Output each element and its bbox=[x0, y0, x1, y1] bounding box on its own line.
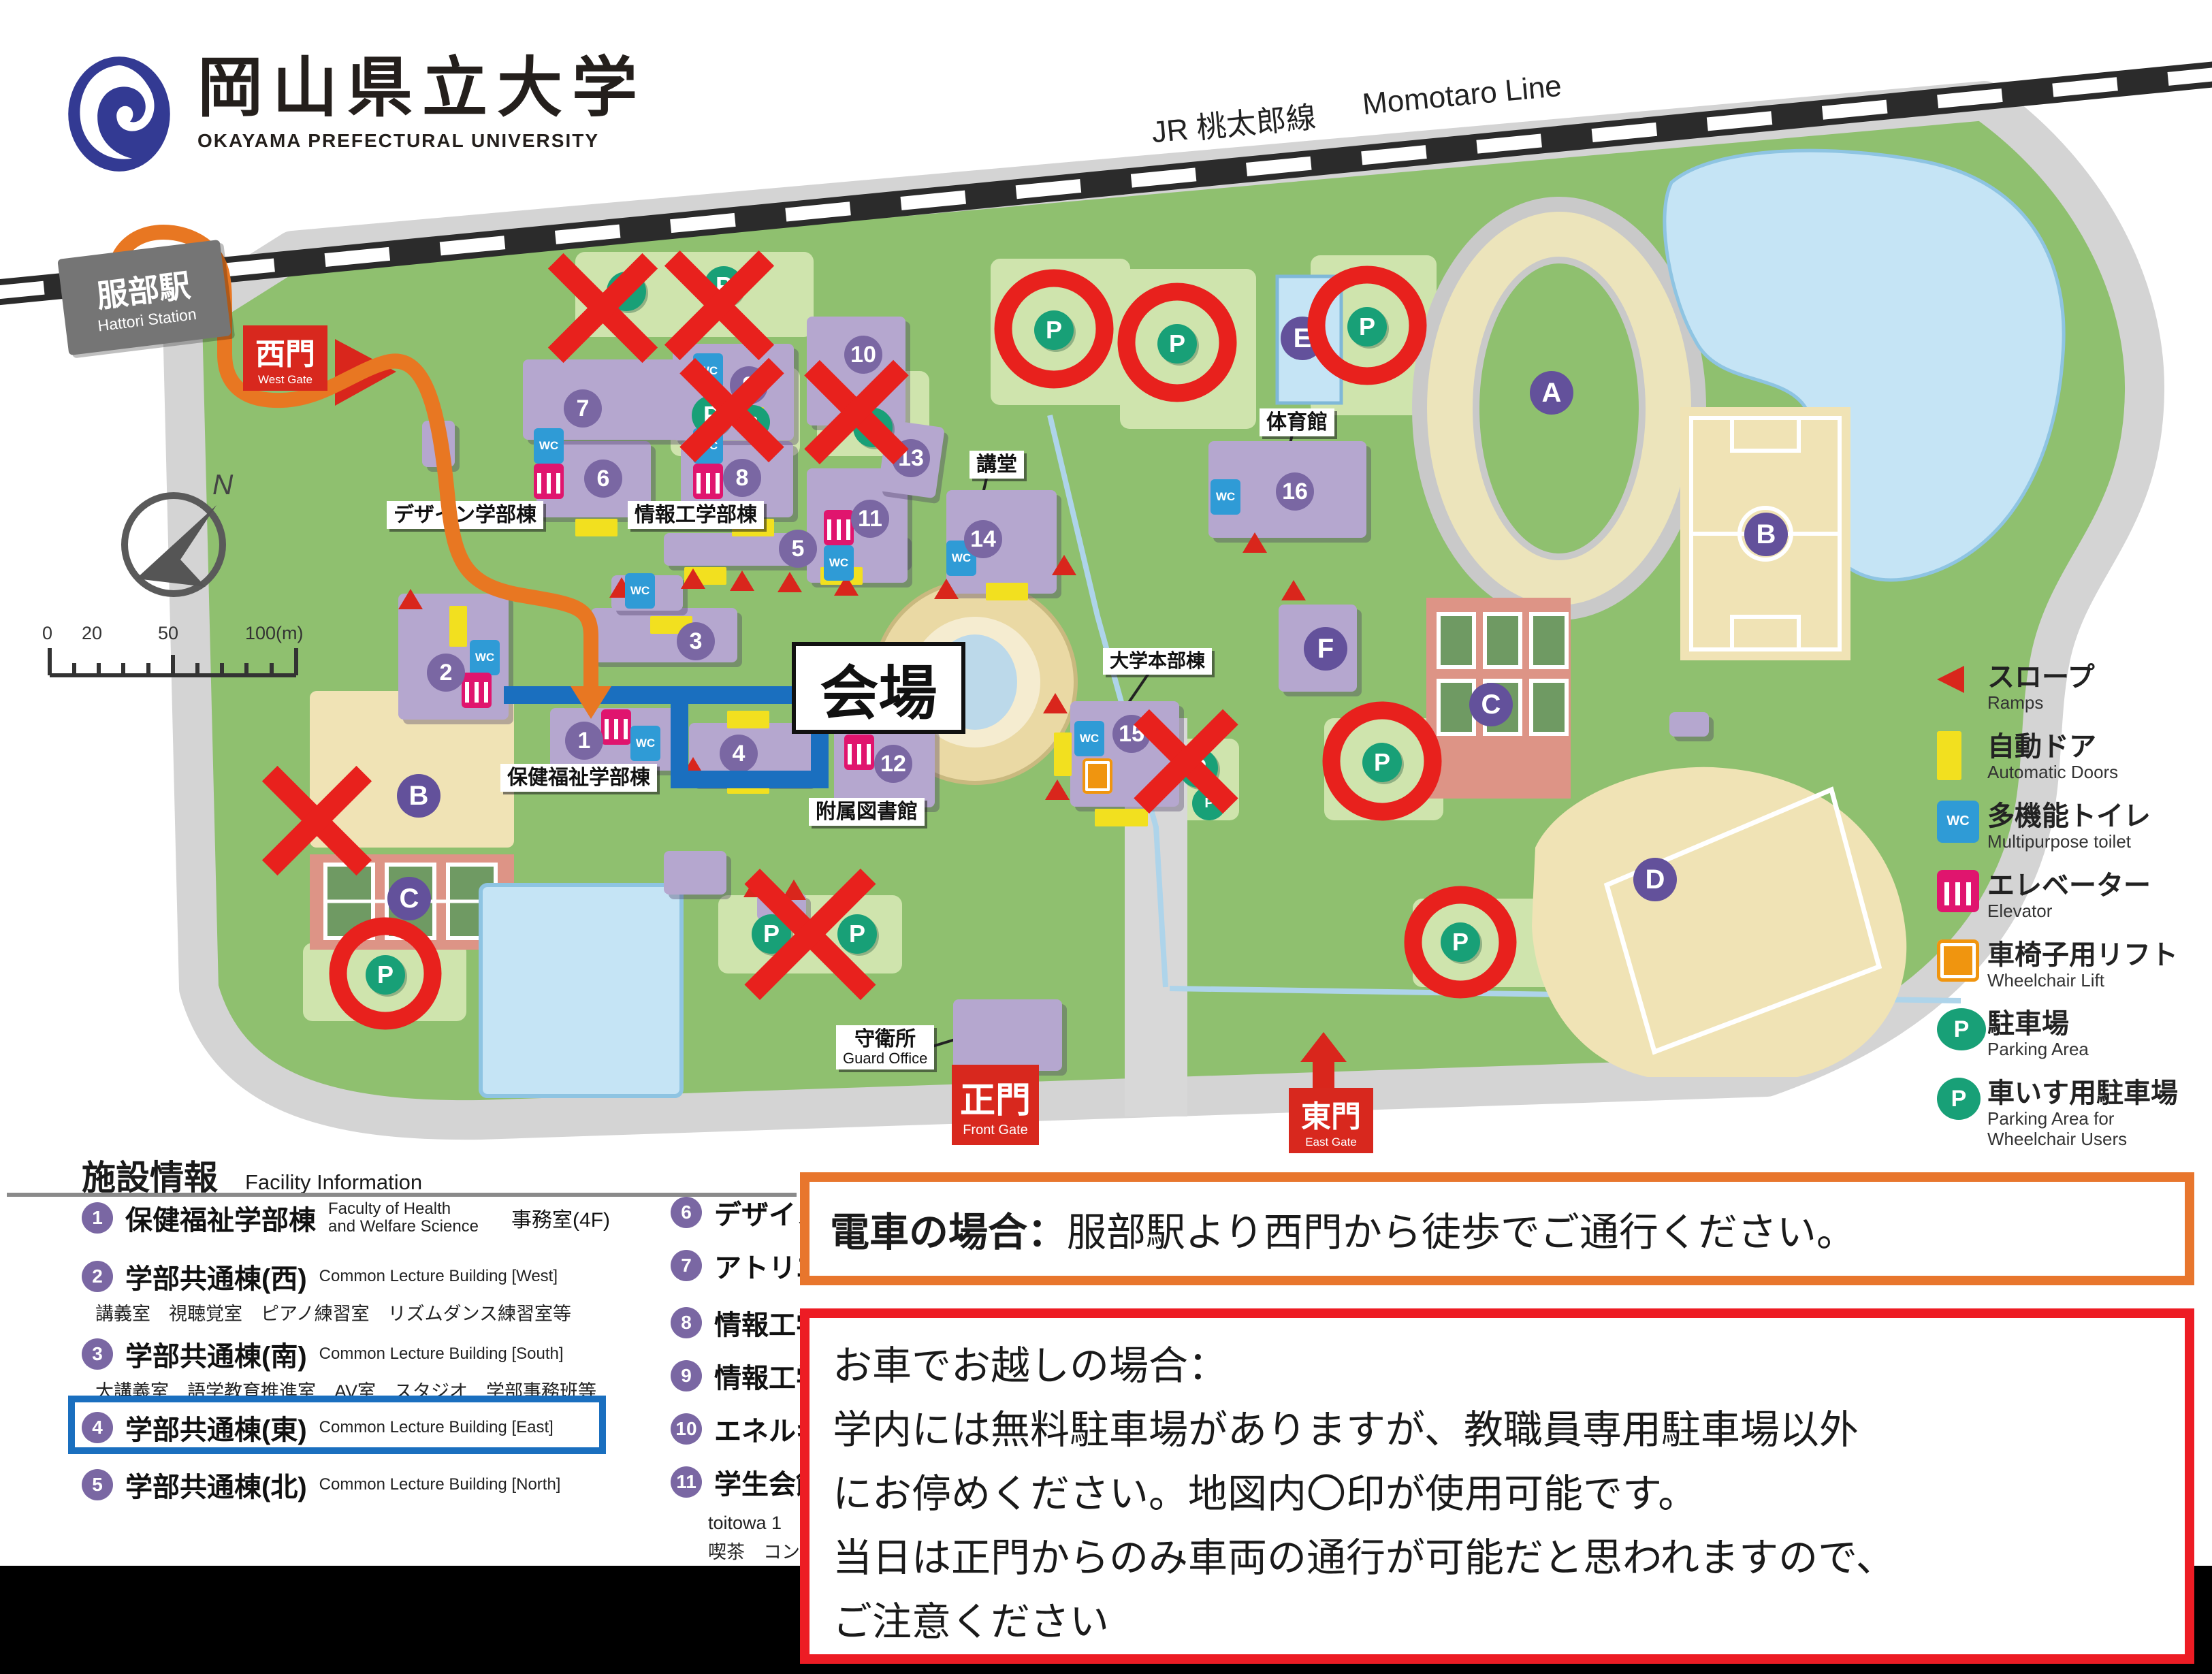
front-gate-en: Front Gate bbox=[963, 1123, 1028, 1138]
facility-sub: 講義室 視聴覚室 ピアノ練習室 リズムダンス練習室等 bbox=[95, 1299, 571, 1325]
facility-num: 7 bbox=[671, 1250, 702, 1281]
allowed-parking-circle-mark bbox=[1118, 283, 1237, 402]
building-number-marker: 14 bbox=[964, 520, 1002, 558]
area-letter-marker: F bbox=[1304, 627, 1347, 671]
multipurpose-toilet-icon: WC bbox=[630, 726, 660, 761]
area-letter-marker: D bbox=[1633, 858, 1677, 901]
facility-num: 1 bbox=[82, 1202, 113, 1234]
allowed-parking-circle-mark bbox=[995, 270, 1114, 389]
guard-office-building bbox=[953, 999, 1062, 1071]
facility-row-3: 3 学部共通棟(南) Common Lecture Building [Sout… bbox=[82, 1334, 564, 1374]
parking-icon: P bbox=[1937, 1008, 1986, 1050]
hattori-station-sign: 服部駅 Hattori Station bbox=[57, 240, 231, 355]
facility-num: 9 bbox=[671, 1360, 702, 1391]
front-gate-ja: 正門 bbox=[960, 1072, 1031, 1123]
wheelchair-parking-icon: P bbox=[1937, 1078, 1981, 1120]
facility-name-en: Faculty of Health bbox=[328, 1200, 479, 1218]
automatic-door-icon bbox=[1054, 733, 1072, 776]
legend-ja: 駐車場 bbox=[1987, 1008, 2089, 1040]
building-number-marker: 1 bbox=[565, 722, 603, 760]
ramp-icon bbox=[1281, 580, 1306, 600]
building-number-marker: 2 bbox=[427, 654, 465, 692]
area-letter-marker: B bbox=[1744, 513, 1788, 556]
legend-en: Elevator bbox=[1987, 901, 2151, 922]
label-info-engineering: 情報工学部棟 bbox=[628, 501, 764, 529]
small-building-1 bbox=[422, 421, 455, 467]
elevator-icon bbox=[824, 510, 854, 545]
legend-item-wheelchair-lift: 車椅子用リフト Wheelchair Lift bbox=[1937, 939, 2209, 991]
label-guard-office: 守衛所 Guard Office bbox=[836, 1025, 934, 1069]
legend-en: Wheelchair Lift bbox=[1987, 971, 2178, 991]
car-notice-line: にお停めください。地図内〇印が使用可能です。 bbox=[833, 1462, 2162, 1526]
ramp-icon bbox=[1045, 779, 1070, 800]
legend-en: Parking Area bbox=[1987, 1040, 2089, 1060]
multipurpose-toilet-icon: WC bbox=[625, 573, 655, 609]
legend-item-ramps: スロープ Ramps bbox=[1937, 662, 2209, 713]
elevator-icon bbox=[534, 464, 564, 499]
scale-label-0: 0 bbox=[42, 623, 52, 644]
car-notice-line: 当日は正門からのみ車両の通行が可能だと思われますので、 bbox=[833, 1526, 2162, 1590]
east-gate-en: East Gate bbox=[1305, 1136, 1357, 1149]
car-notice-line: ご注意ください bbox=[833, 1590, 2162, 1654]
university-logo-swirl-icon bbox=[65, 54, 174, 174]
elevator-icon bbox=[1937, 870, 1979, 912]
legend-en: Automatic Doors bbox=[1987, 762, 2118, 783]
scale-label-50: 50 bbox=[158, 623, 178, 644]
legend-ja: 車いす用駐車場 bbox=[1987, 1078, 2178, 1109]
scale-label-20: 20 bbox=[82, 623, 102, 644]
building-number-marker: 5 bbox=[779, 530, 817, 568]
building-number-marker: 16 bbox=[1276, 472, 1314, 511]
multipurpose-toilet-icon: WC bbox=[1937, 801, 1979, 843]
facility-num: 2 bbox=[82, 1261, 113, 1292]
west-gate-sign: 西門 West Gate bbox=[243, 325, 327, 391]
allowed-parking-circle-mark bbox=[1405, 886, 1517, 999]
legend-ja: 車椅子用リフト bbox=[1987, 939, 2178, 971]
automatic-door-icon bbox=[986, 583, 1028, 600]
legend-en2: Wheelchair Users bbox=[1987, 1129, 2178, 1150]
no-parking-x-mark bbox=[660, 246, 779, 365]
facility-num: 8 bbox=[671, 1307, 702, 1338]
no-parking-x-mark bbox=[737, 861, 884, 1008]
campus-access-map-page: { "logo": {"ja": "岡山県立大学", "en": "OKAYAM… bbox=[0, 0, 2212, 1674]
multipurpose-toilet-icon: WC bbox=[1074, 721, 1104, 756]
legend-en: Parking Area for bbox=[1987, 1109, 2178, 1129]
facility-num: 10 bbox=[671, 1413, 702, 1445]
multipurpose-toilet-icon: WC bbox=[824, 545, 854, 581]
legend-en: Multipurpose toilet bbox=[1987, 832, 2151, 852]
ramp-icon bbox=[730, 570, 754, 591]
small-building-3 bbox=[664, 851, 726, 895]
elevator-icon bbox=[844, 735, 874, 770]
building-number-marker: 3 bbox=[677, 622, 715, 660]
wheelchair-lift-icon bbox=[1937, 939, 1979, 982]
legend-item-automatic-doors: 自動ドア Automatic Doors bbox=[1937, 731, 2209, 783]
facility-name-en: Common Lecture Building [South] bbox=[319, 1345, 564, 1363]
legend-en: Ramps bbox=[1987, 693, 2095, 713]
legend-item-multipurpose-toilet: WC 多機能トイレ Multipurpose toilet bbox=[1937, 801, 2209, 852]
university-name-en: OKAYAMA PREFECTURAL UNIVERSITY bbox=[197, 130, 647, 152]
venue-callout: 会場 bbox=[792, 642, 965, 734]
facility-name-en: Common Lecture Building [West] bbox=[319, 1268, 558, 1285]
ramp-icon bbox=[681, 568, 705, 589]
train-notice-body: 服部駅より西門から徒歩でご通行ください。 bbox=[1067, 1200, 1856, 1257]
elevator-icon bbox=[462, 673, 492, 708]
elevator-icon bbox=[693, 464, 723, 499]
no-parking-x-mark bbox=[543, 248, 662, 368]
facility-row-5: 5 学部共通棟(北) Common Lecture Building [Nort… bbox=[82, 1465, 560, 1504]
building-number-marker: 12 bbox=[874, 745, 912, 783]
facility-name-ja: 学部共通棟(東) bbox=[125, 1408, 307, 1447]
legend-item-elevator: エレベーター Elevator bbox=[1937, 870, 2209, 922]
map-legend: スロープ Ramps 自動ドア Automatic Doors WC 多機能トイ… bbox=[1937, 662, 2209, 1168]
no-parking-x-mark bbox=[257, 761, 376, 880]
legend-ja: スロープ bbox=[1987, 662, 2095, 693]
facility-name-en2: and Welfare Science bbox=[328, 1218, 479, 1236]
ramp-icon bbox=[1043, 693, 1068, 713]
facility-num: 5 bbox=[82, 1469, 113, 1500]
multipurpose-toilet-icon: WC bbox=[470, 640, 500, 675]
university-logo: 岡山県立大学 OKAYAMA PREFECTURAL UNIVERSITY bbox=[65, 54, 647, 174]
west-gate-en: West Gate bbox=[258, 373, 312, 387]
area-letter-marker: A bbox=[1530, 371, 1573, 415]
east-gate-sign: 東門 East Gate bbox=[1289, 1088, 1373, 1153]
facility-name-ja: 保健福祉学部棟 bbox=[125, 1198, 316, 1238]
venue-highlight-bar bbox=[504, 686, 674, 704]
legend-ja: 多機能トイレ bbox=[1987, 801, 2151, 832]
facility-num: 4 bbox=[82, 1412, 113, 1443]
facility-title-en: Facility Information bbox=[245, 1170, 422, 1195]
ramp-icon bbox=[1937, 666, 1964, 693]
guard-office-en: Guard Office bbox=[843, 1050, 927, 1067]
label-auditorium: 講堂 bbox=[969, 451, 1024, 479]
facility-num: 6 bbox=[671, 1197, 702, 1228]
legend-ja: エレベーター bbox=[1987, 870, 2151, 901]
area-letter-marker: B bbox=[397, 774, 440, 818]
no-parking-x-mark bbox=[676, 354, 788, 466]
front-gate-sign: 正門 Front Gate bbox=[952, 1065, 1039, 1145]
facility-num: 11 bbox=[671, 1466, 702, 1498]
car-notice-line: 学内には無料駐車場がありますが、教職員専用駐車場以外 bbox=[833, 1398, 2162, 1462]
legend-ja: 自動ドア bbox=[1987, 731, 2118, 762]
car-access-notice: お車でお越しの場合： 学内には無料駐車場がありますが、教職員専用駐車場以外 にお… bbox=[800, 1308, 2194, 1664]
area-letter-marker: C bbox=[1469, 683, 1513, 726]
car-notice-line: お車でお越しの場合： bbox=[833, 1334, 2162, 1398]
compass-n-label: N bbox=[212, 468, 233, 501]
facility-row-4: 4 学部共通棟(東) Common Lecture Building [East… bbox=[82, 1408, 554, 1447]
label-admin-building: 大学本部棟 bbox=[1103, 648, 1212, 675]
guard-office-ja: 守衛所 bbox=[843, 1028, 927, 1050]
no-parking-x-mark bbox=[801, 356, 913, 468]
label-health-welfare: 保健福祉学部棟 bbox=[500, 764, 657, 792]
facility-sub: toitowa 1 bbox=[708, 1513, 782, 1534]
allowed-parking-circle-mark bbox=[1323, 702, 1442, 821]
building-number-marker: 11 bbox=[851, 500, 889, 538]
allowed-parking-circle-mark bbox=[1308, 266, 1427, 385]
ramp-icon bbox=[934, 579, 959, 599]
scale-label-100: 100(m) bbox=[245, 623, 304, 644]
ramp-icon bbox=[1243, 532, 1267, 553]
east-gate-ja: 東門 bbox=[1301, 1092, 1361, 1136]
label-design-faculty: デザイン学部棟 bbox=[387, 501, 543, 529]
venue-label: 会場 bbox=[820, 645, 937, 730]
multipurpose-toilet-icon: WC bbox=[1211, 479, 1240, 515]
label-gym: 体育館 bbox=[1260, 408, 1334, 436]
wheelchair-lift-icon bbox=[1083, 758, 1112, 794]
facility-row-1: 1 保健福祉学部棟 Faculty of Health and Welfare … bbox=[82, 1198, 610, 1238]
ramp-icon bbox=[778, 572, 802, 592]
automatic-door-icon bbox=[449, 606, 467, 647]
automatic-door-icon bbox=[575, 519, 618, 536]
area-letter-marker: C bbox=[387, 877, 431, 920]
building-number-marker: 7 bbox=[564, 389, 602, 428]
ramp-icon bbox=[398, 589, 423, 609]
small-building-4 bbox=[1669, 712, 1709, 737]
automatic-door-icon bbox=[1937, 731, 1961, 780]
elevator-icon bbox=[601, 709, 631, 745]
legend-item-wheelchair-parking: P 車いす用駐車場 Parking Area for Wheelchair Us… bbox=[1937, 1078, 2209, 1150]
facility-name-en: Common Lecture Building [North] bbox=[319, 1476, 561, 1494]
no-parking-x-mark bbox=[1130, 705, 1243, 818]
facility-num: 3 bbox=[82, 1338, 113, 1370]
multipurpose-toilet-icon: WC bbox=[534, 428, 564, 464]
ramp-icon bbox=[1052, 555, 1076, 575]
facility-extra: 事務室(4F) bbox=[511, 1203, 610, 1233]
west-gate-ja: 西門 bbox=[255, 329, 315, 373]
building-number-marker: 6 bbox=[584, 460, 622, 498]
train-access-notice: 電車の場合： 服部駅より西門から徒歩でご通行ください。 bbox=[800, 1172, 2194, 1285]
train-notice-head: 電車の場合： bbox=[830, 1200, 1067, 1257]
legend-item-parking: P 駐車場 Parking Area bbox=[1937, 1008, 2209, 1060]
facility-sub: 喫茶 コン bbox=[708, 1537, 800, 1564]
facility-row-2: 2 学部共通棟(西) Common Lecture Building [West… bbox=[82, 1257, 558, 1296]
facility-name-ja: 学部共通棟(南) bbox=[125, 1334, 307, 1374]
facility-name-en: Common Lecture Building [East] bbox=[319, 1419, 554, 1436]
pool bbox=[481, 885, 682, 1096]
allowed-parking-circle-mark bbox=[330, 918, 442, 1030]
facility-name-ja: 学部共通棟(北) bbox=[125, 1465, 307, 1504]
label-library: 附属図書館 bbox=[809, 798, 925, 826]
facility-name-ja: 学部共通棟(西) bbox=[125, 1257, 307, 1296]
university-name-ja: 岡山県立大学 bbox=[197, 54, 647, 123]
